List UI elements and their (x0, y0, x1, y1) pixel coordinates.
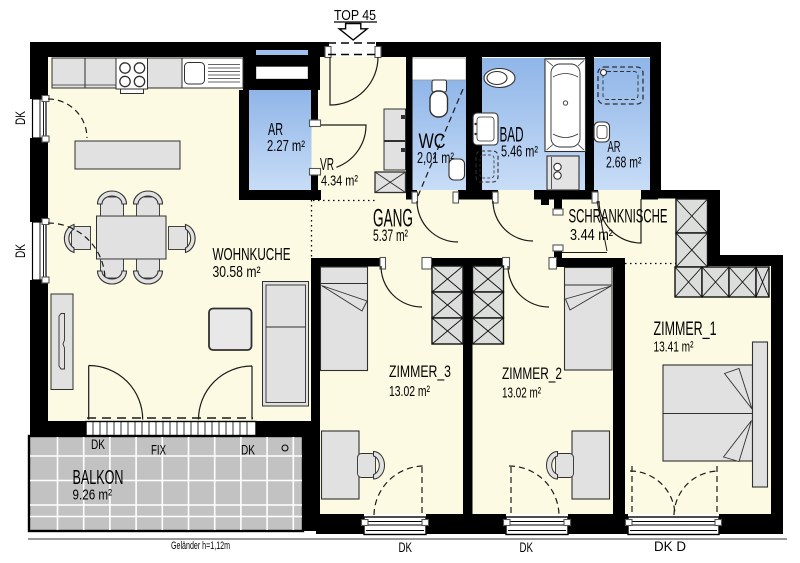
svg-text:VR: VR (320, 154, 334, 174)
svg-text:13.02 m²: 13.02 m² (502, 385, 541, 402)
svg-text:DK: DK (520, 539, 534, 555)
svg-text:2.68 m²: 2.68 m² (606, 155, 642, 172)
svg-text:3.44 m²: 3.44 m² (570, 227, 613, 244)
svg-text:30.58 m²: 30.58 m² (213, 264, 261, 281)
svg-text:DK: DK (91, 436, 105, 452)
svg-text:2.27 m²: 2.27 m² (267, 138, 305, 155)
svg-text:AR: AR (268, 119, 283, 139)
svg-text:DK: DK (241, 442, 255, 458)
svg-text:DK: DK (12, 244, 28, 258)
svg-text:13.41 m²: 13.41 m² (654, 339, 694, 356)
svg-text:FIX: FIX (151, 442, 166, 458)
svg-text:2,01 m²: 2,01 m² (417, 150, 454, 167)
svg-text:ZIMMER_2: ZIMMER_2 (502, 364, 562, 383)
svg-text:SCHRANKNISCHE: SCHRANKNISCHE (569, 206, 668, 228)
svg-text:9.26 m²: 9.26 m² (73, 487, 113, 504)
svg-text:Geländer h=1,12m: Geländer h=1,12m (171, 540, 230, 552)
svg-text:ZIMMER_1: ZIMMER_1 (654, 319, 717, 340)
svg-text:DK: DK (399, 539, 413, 555)
svg-text:WOHNKUCHE: WOHNKUCHE (213, 244, 291, 264)
svg-text:13.02 m²: 13.02 m² (389, 383, 430, 400)
svg-text:5.46 m²: 5.46 m² (501, 144, 538, 161)
svg-text:5.37 m²: 5.37 m² (373, 226, 408, 245)
svg-text:ZIMMER_3: ZIMMER_3 (389, 362, 451, 381)
svg-text:DK: DK (12, 111, 28, 125)
svg-text:AR: AR (608, 139, 621, 156)
svg-text:DK D: DK D (654, 538, 686, 554)
svg-text:4.34 m²: 4.34 m² (321, 173, 358, 190)
